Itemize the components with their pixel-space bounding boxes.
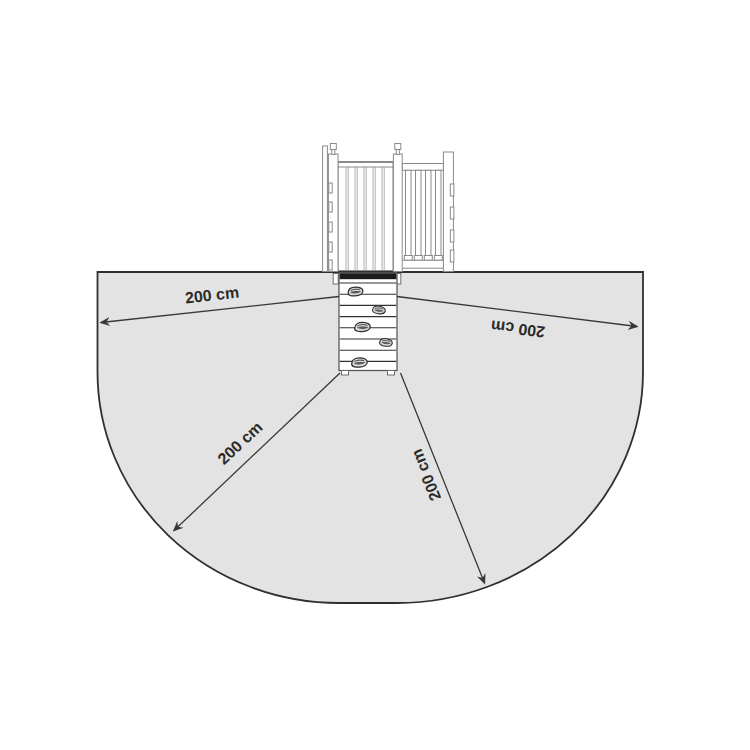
wall-top-band bbox=[340, 273, 397, 279]
wall-bracket-left bbox=[333, 274, 338, 285]
tower-structure bbox=[323, 144, 454, 272]
safety-zone-diagram: 200 cm 200 cm 200 cm 200 cm bbox=[0, 0, 750, 750]
post-finial-left bbox=[330, 144, 336, 155]
diagram-canvas: 200 cm 200 cm 200 cm 200 cm bbox=[0, 0, 750, 750]
climbing-wall bbox=[333, 273, 401, 376]
wall-foot-left bbox=[342, 371, 349, 376]
wall-foot-right bbox=[388, 371, 395, 376]
tower-plank-left bbox=[323, 146, 328, 272]
tower-post-middle bbox=[393, 154, 402, 272]
railing-top-rail bbox=[402, 164, 443, 171]
wall-body bbox=[339, 273, 397, 371]
climbing-hold bbox=[354, 322, 370, 332]
railing-balusters bbox=[404, 170, 442, 260]
railing-bottom-rail bbox=[398, 260, 446, 268]
tower-post-left bbox=[328, 154, 338, 272]
post-finial-middle bbox=[395, 144, 401, 155]
tower-panel-top-rail bbox=[338, 163, 393, 168]
